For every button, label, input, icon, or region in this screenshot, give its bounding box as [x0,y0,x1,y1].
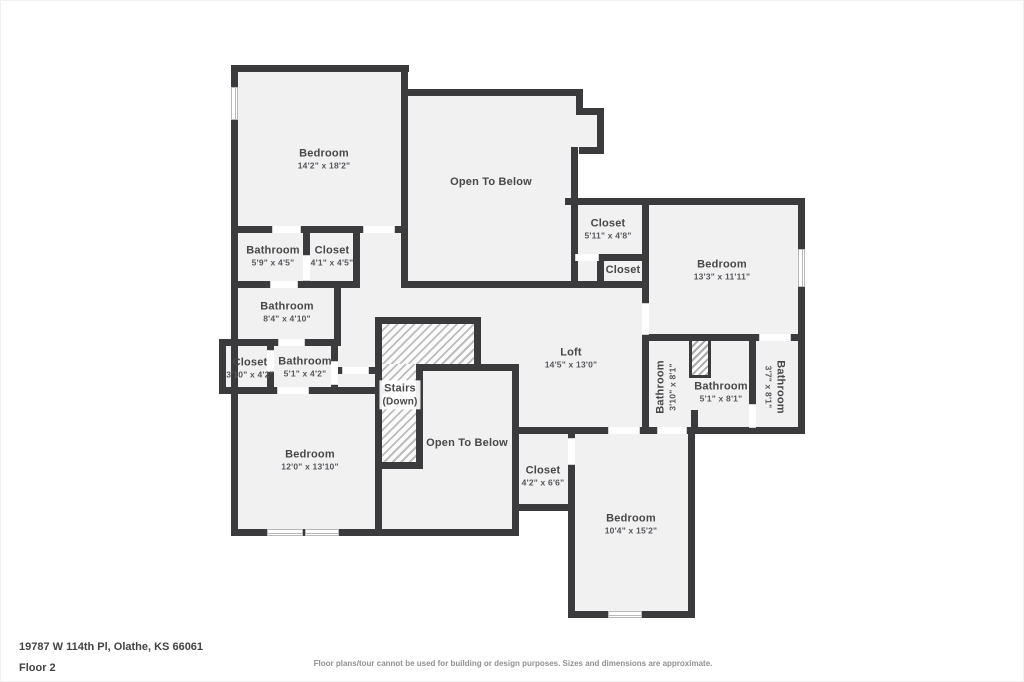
room-label-open-to-below-top: Open To Below [450,175,532,189]
door-opening [270,281,298,288]
door-opening [278,339,305,346]
floor-area [576,115,597,147]
room-label-stairs: Stairs (Down) [379,380,420,409]
door-opening [759,334,791,341]
wall [233,65,409,72]
wall [512,504,575,511]
room-label-bathroom-a: Bathroom 5'9" x 4'5" [246,243,300,268]
wall [408,89,583,96]
floorplan-page: Bedroom 14'2" x 18'2" Open To Below Bath… [0,0,1024,682]
floor-label: Floor 2 [19,662,56,674]
door-opening [272,226,301,233]
wall [353,226,360,288]
wall [691,410,698,434]
wall [401,281,649,288]
wall [579,147,604,154]
room-label-closet-a: Closet 4'1" x 4'5" [311,243,354,268]
room-label-bathroom-e: Bathroom 5'1" x 8'1" [694,379,748,404]
room-label-closet-small: Closet [606,263,641,277]
door-opening [342,367,369,374]
door-opening [277,387,309,394]
wall [375,394,382,536]
wall [219,339,226,394]
room-label-bedroom-bottom-right: Bedroom 10'4" x 15'2" [605,511,658,536]
window [798,249,805,287]
stairs-hatch [382,324,474,364]
room-label-closet-br: Closet 4'2" x 6'6" [522,463,565,488]
door-opening [749,404,756,428]
door-opening [363,226,395,233]
wall [334,281,341,346]
wall [474,317,481,371]
door-opening [568,438,575,465]
wall [642,341,649,434]
room-label-bathroom-c: Bathroom 5'1" x 4'2" [278,354,332,379]
window [305,529,339,536]
wall [423,364,519,371]
wall [571,147,578,288]
door-opening [657,427,687,434]
disclaimer-text: Floor plans/tour cannot be used for buil… [314,659,713,668]
wall [688,434,695,618]
wall [798,198,805,434]
wall [375,317,481,324]
room-label-bedroom-bottom-left: Bedroom 12'0" x 13'10" [281,447,338,472]
property-address: 19787 W 114th Pl, Olathe, KS 66061 [19,641,203,653]
shaft-hatch [689,338,711,378]
room-label-loft: Loft 14'5" x 13'0" [545,345,598,370]
wall [642,198,649,261]
room-label-bedroom-top-left: Bedroom 14'2" x 18'2" [298,146,351,171]
room-label-closet-top: Closet 5'11" x 4'8" [584,216,631,241]
stairs-hatch [382,364,416,462]
wall [231,65,238,536]
wall [375,462,423,469]
door-opening [608,427,640,434]
window [608,611,642,618]
window [231,87,238,120]
room-label-bathroom-b: Bathroom 8'4" x 4'10" [260,299,314,324]
wall [565,198,805,205]
window [267,529,303,536]
door-opening [575,254,599,261]
room-label-bedroom-top-right: Bedroom 13'3" x 11'11" [694,257,751,282]
room-label-closet-b: Closet 3'10" x 4'2" [226,355,274,380]
wall [401,65,408,288]
room-label-bathroom-f: Bathroom 3'7" x 8'1" [762,360,787,414]
door-opening [303,255,310,281]
room-label-open-to-below-bottom: Open To Below [426,436,508,450]
room-label-bathroom-d: Bathroom 3'10" x 8'1" [653,360,678,414]
door-opening [642,303,649,335]
